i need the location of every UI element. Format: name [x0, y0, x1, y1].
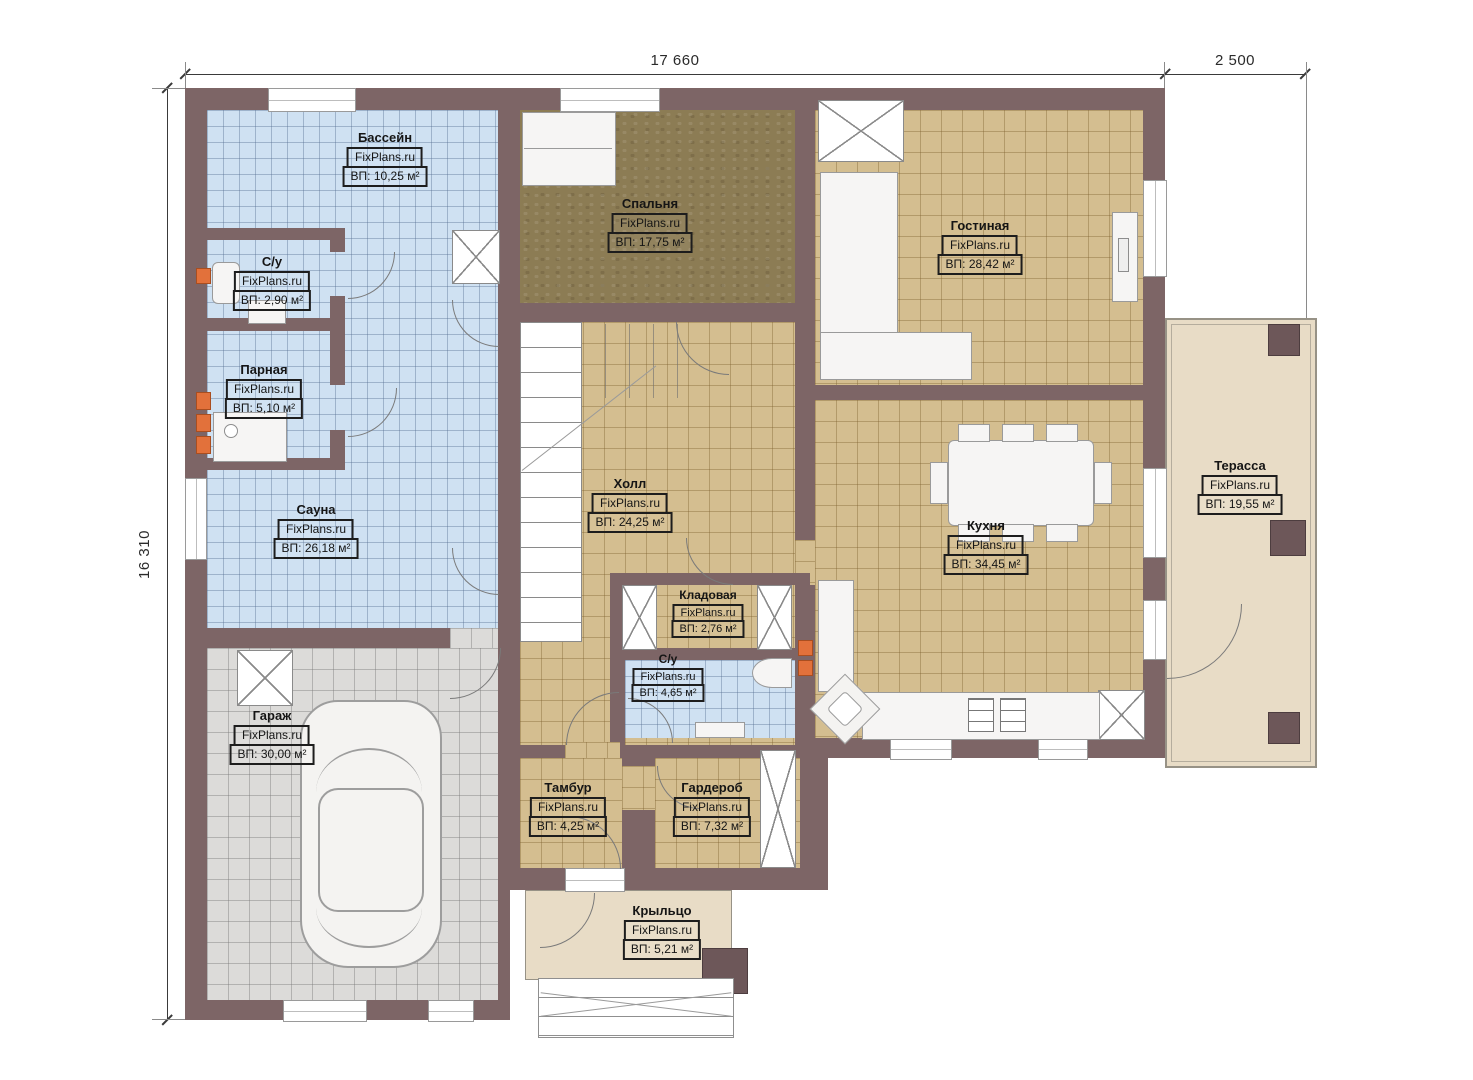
wall-steam-right: [330, 296, 345, 385]
room-area: ВП: 24,25 м²: [588, 512, 673, 533]
sofa: [820, 172, 898, 354]
room-name: Спальня: [622, 196, 678, 211]
dimension-line-left: [167, 88, 168, 1020]
watermark: FixPlans.ru: [592, 493, 668, 514]
window-top-bedroom: [560, 88, 660, 112]
wall-wc1-top: [207, 228, 345, 240]
oven-icon: [1000, 698, 1026, 732]
door-gap-porch: [565, 868, 625, 892]
radiator-icon: [196, 268, 211, 284]
room-name: С/у: [659, 652, 678, 666]
door-gap-terrace: [1143, 600, 1167, 660]
vent-shaft-symbol: [818, 100, 904, 162]
watermark: FixPlans.ru: [674, 797, 750, 818]
watermark: FixPlans.ru: [612, 213, 688, 234]
window-right-kitchen: [1143, 468, 1167, 558]
closet-symbol: [760, 750, 796, 868]
chair: [930, 462, 948, 504]
room-label-wc1: С/у FixPlans.ru ВП: 2,90 м²: [233, 254, 311, 311]
radiator-icon: [196, 392, 211, 410]
extension-line: [152, 1019, 185, 1020]
tv-screen: [1118, 238, 1129, 272]
wall-bedroom-hall: [498, 303, 673, 322]
wall-living-kitchen: [815, 385, 1015, 400]
watermark: FixPlans.ru: [234, 271, 310, 292]
door-gap-garage: [450, 628, 498, 648]
sofa-chaise: [820, 332, 972, 380]
watermark: FixPlans.ru: [347, 147, 423, 168]
room-label-hall: Холл FixPlans.ru ВП: 24,25 м²: [588, 476, 673, 533]
room-label-porch: Крыльцо FixPlans.ru ВП: 5,21 м²: [623, 903, 701, 960]
window-top-pool: [268, 88, 356, 112]
room-name: Гостиная: [951, 218, 1010, 233]
watermark: FixPlans.ru: [234, 725, 310, 746]
room-label-garage: Гараж FixPlans.ru ВП: 30,00 м²: [230, 708, 315, 765]
room-area: ВП: 28,42 м²: [938, 254, 1023, 275]
porch-steps: [538, 978, 734, 1038]
room-label-pantry: Кладовая FixPlans.ru ВП: 2,76 м²: [671, 588, 744, 638]
dimension-line-top-right: [1165, 74, 1305, 75]
wall-wc1-right: [330, 228, 345, 252]
stove-icon: [968, 698, 994, 732]
room-label-pool: Бассейн FixPlans.ru ВП: 10,25 м²: [343, 130, 428, 187]
window-bottom-kitchen: [1038, 738, 1088, 760]
wall-hall-living: [795, 88, 815, 540]
room-area: ВП: 26,18 м²: [274, 538, 359, 559]
window-left-sauna: [185, 478, 207, 560]
room-name: Тамбур: [544, 780, 591, 795]
fridge-symbol: [1098, 690, 1145, 740]
room-label-terrace: Терасса FixPlans.ru ВП: 19,55 м²: [1198, 458, 1283, 515]
chair: [1002, 424, 1034, 442]
staircase: [520, 322, 582, 642]
room-name: Сауна: [296, 502, 335, 517]
room-name: С/у: [262, 254, 282, 269]
shower-symbol: [452, 230, 500, 284]
staircase-upper-treads: [582, 324, 678, 398]
wall-sauna-garage: [185, 628, 450, 648]
room-area: ВП: 17,75 м²: [608, 232, 693, 253]
room-name: Гараж: [253, 708, 292, 723]
watermark: FixPlans.ru: [226, 379, 302, 400]
dim-label-top-right: 2 500: [1215, 52, 1255, 69]
radiator-icon: [196, 414, 211, 432]
radiator-icon: [798, 640, 813, 656]
room-label-kitchen: Кухня FixPlans.ru ВП: 34,45 м²: [944, 518, 1029, 575]
room-label-wardrobe: Гардероб FixPlans.ru ВП: 7,32 м²: [673, 780, 751, 837]
room-label-living: Гостиная FixPlans.ru ВП: 28,42 м²: [938, 218, 1023, 275]
radiator-icon: [196, 436, 211, 454]
room-area: ВП: 7,32 м²: [673, 816, 751, 837]
floor-plan-canvas: 17 660 2 500 16 310: [0, 0, 1473, 1080]
toilet-icon: [752, 658, 792, 688]
kitchen-counter-left: [818, 580, 854, 692]
watermark: FixPlans.ru: [278, 519, 354, 540]
room-area: ВП: 4,25 м²: [529, 816, 607, 837]
wall-bedroom-hall: [728, 303, 795, 322]
closet-symbol: [757, 585, 792, 650]
terrace-column: [1268, 712, 1300, 744]
watermark: FixPlans.ru: [1202, 475, 1278, 496]
chair: [1094, 462, 1112, 504]
room-area: ВП: 19,55 м²: [1198, 494, 1283, 515]
room-label-wc2: С/у FixPlans.ru ВП: 4,65 м²: [631, 652, 704, 702]
room-label-vestibule: Тамбур FixPlans.ru ВП: 4,25 м²: [529, 780, 607, 837]
bedroom-closet-line: [524, 148, 612, 149]
room-name: Парная: [240, 362, 287, 377]
window-bottom-garage: [428, 1000, 474, 1022]
window-bottom-kitchen: [890, 738, 952, 760]
chair: [1046, 524, 1078, 542]
car-roof: [318, 788, 424, 912]
door-gap-wardrobe: [622, 766, 655, 810]
room-area: ВП: 4,65 м²: [631, 684, 704, 702]
room-area: ВП: 34,45 м²: [944, 554, 1029, 575]
terrace-column: [1268, 324, 1300, 356]
room-label-bedroom: Спальня FixPlans.ru ВП: 17,75 м²: [608, 196, 693, 253]
steam-bench: [213, 412, 287, 462]
room-area: ВП: 10,25 м²: [343, 166, 428, 187]
dim-label-left: 16 310: [136, 530, 153, 579]
extension-line: [185, 62, 186, 88]
window-right-living: [1143, 180, 1167, 277]
chair: [958, 424, 990, 442]
chair: [1046, 424, 1078, 442]
room-area: ВП: 5,21 м²: [623, 939, 701, 960]
room-name: Бассейн: [358, 130, 412, 145]
room-name: Гардероб: [681, 780, 742, 795]
dimension-line-top-main: [185, 74, 1165, 75]
dining-table: [948, 440, 1094, 526]
room-name: Кладовая: [679, 588, 736, 602]
extension-line: [152, 88, 185, 89]
watermark: FixPlans.ru: [530, 797, 606, 818]
extension-line: [1306, 62, 1307, 318]
dim-label-top-main: 17 660: [651, 52, 700, 69]
room-area: ВП: 2,90 м²: [233, 290, 311, 311]
terrace-column: [1270, 520, 1306, 556]
room-area: ВП: 2,76 м²: [671, 620, 744, 638]
extension-line: [1164, 62, 1165, 88]
vent-shaft-symbol: [237, 650, 293, 706]
room-label-steam: Парная FixPlans.ru ВП: 5,10 м²: [225, 362, 303, 419]
watermark: FixPlans.ru: [624, 920, 700, 941]
room-name: Холл: [614, 476, 647, 491]
watermark: FixPlans.ru: [942, 235, 1018, 256]
room-name: Терасса: [1214, 458, 1266, 473]
room-area: ВП: 30,00 м²: [230, 744, 315, 765]
room-name: Кухня: [967, 518, 1005, 533]
room-name: Крыльцо: [632, 903, 691, 918]
sink-icon: [695, 722, 745, 738]
watermark: FixPlans.ru: [948, 535, 1024, 556]
window-bottom-garage: [283, 1000, 367, 1022]
bedroom-closet: [522, 112, 616, 186]
radiator-icon: [798, 660, 813, 676]
stove-icon: [224, 424, 238, 438]
room-area: ВП: 5,10 м²: [225, 398, 303, 419]
room-label-sauna: Сауна FixPlans.ru ВП: 26,18 м²: [274, 502, 359, 559]
closet-symbol: [622, 585, 657, 650]
